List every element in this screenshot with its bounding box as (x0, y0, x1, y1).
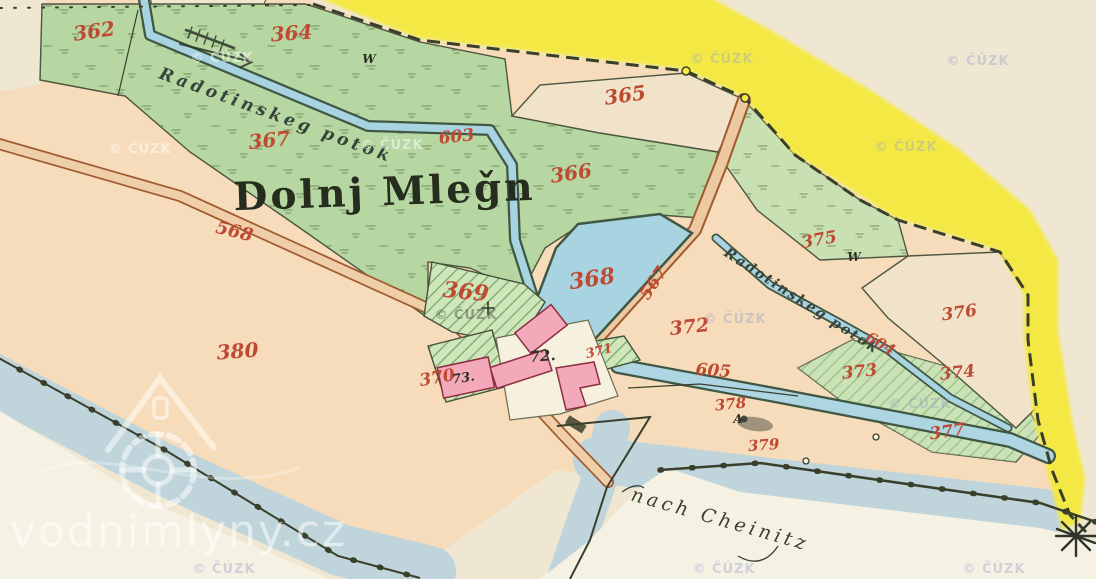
copyright-watermark: © ČÚZK (190, 50, 253, 66)
parcel-374: 374 (939, 361, 976, 385)
waterway-605: 605 (695, 360, 732, 382)
copyright-watermark: © ČÚZK (108, 141, 171, 157)
cadastral-map: Dolnj Mleǧn Radotinskeg potok Radotinske… (0, 0, 1096, 579)
copyright-watermark: © ČÚZK (192, 561, 255, 577)
meadow-symbol-w-2: W (847, 250, 862, 264)
parcel-373: 373 (841, 360, 879, 384)
letter-A: A (732, 412, 742, 426)
copyright-watermark: © ČÚZK (962, 561, 1025, 577)
parcel-364: 364 (270, 20, 313, 47)
parcel-367: 367 (247, 126, 291, 154)
parcel-369: 369 (442, 277, 490, 308)
house-number-73: 73. (451, 370, 475, 388)
copyright-watermark: © ČÚZK (360, 137, 423, 153)
house-number-72: 72. (529, 346, 557, 366)
blank-corner (0, 0, 46, 92)
copyright-watermark: © ČÚZK (946, 53, 1009, 69)
copyright-watermark: © ČÚZK (690, 51, 753, 67)
site-watermark: vodnimlyny.cz (10, 506, 347, 557)
map-svg: Dolnj Mleǧn Radotinskeg potok Radotinske… (0, 0, 1096, 579)
copyright-watermark: © ČÚZK (874, 139, 937, 155)
copyright-watermark: © ČÚZK (434, 307, 497, 323)
parcel-379: 379 (747, 435, 780, 455)
copyright-watermark: © ČÚZK (692, 561, 755, 577)
copyright-watermark: © ČÚZK (888, 396, 951, 412)
parcel-380: 380 (216, 338, 259, 365)
meadow-symbol-w-1: W (362, 52, 377, 66)
star-symbol (1056, 516, 1096, 556)
copyright-watermark: © ČÚZK (703, 311, 766, 327)
waterway-603: 603 (438, 125, 476, 149)
